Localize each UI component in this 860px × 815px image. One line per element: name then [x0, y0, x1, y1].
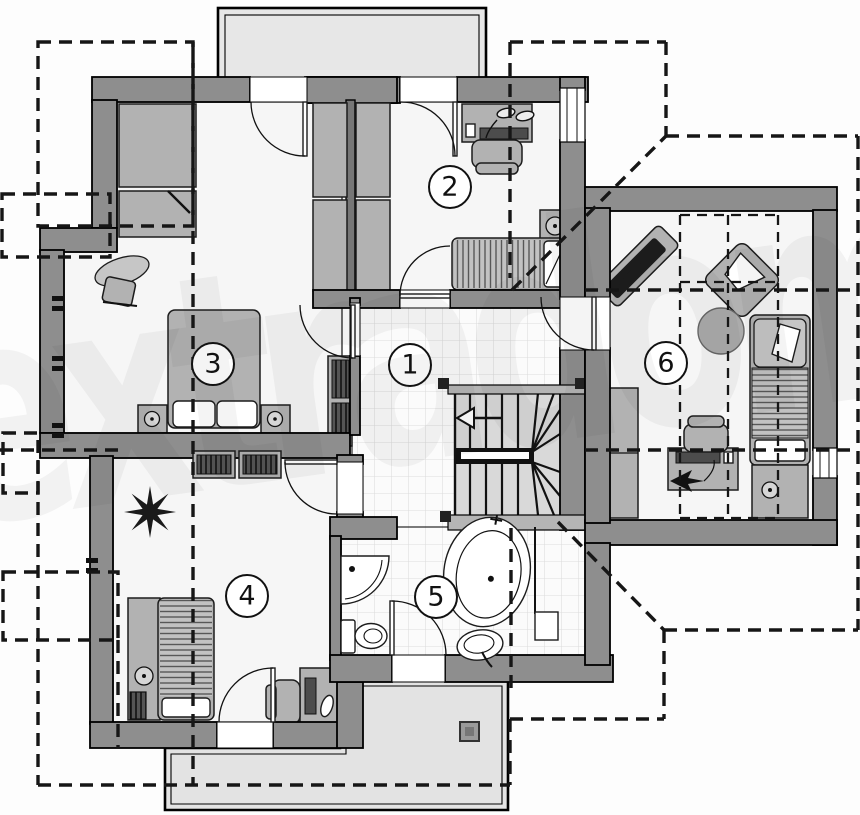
- room-number-4: 4: [238, 581, 255, 612]
- bedside-cabinet-room-6: [752, 465, 808, 518]
- window-room-2-east: [560, 88, 585, 142]
- room-label-2: 2: [429, 166, 471, 208]
- room-label-6: 6: [645, 342, 687, 384]
- round-rug-room-6: [698, 308, 744, 354]
- desk-chair-room-6: [684, 416, 728, 452]
- room-number-2: 2: [441, 172, 458, 203]
- room-number-5: 5: [427, 582, 444, 613]
- floor-plan-drawing: 1 2 3 4 5 6: [0, 0, 860, 815]
- bedside-platform-room-4: [128, 598, 160, 720]
- window-room-6-east: [813, 448, 837, 478]
- radiator-room-4: [130, 692, 146, 719]
- room-label-3: 3: [192, 343, 234, 385]
- single-bed-room-6: [750, 315, 810, 465]
- room-label-4: 4: [226, 575, 268, 617]
- room-number-3: 3: [204, 349, 221, 380]
- room-number-1: 1: [401, 350, 418, 381]
- room-label-1: 1: [389, 344, 431, 386]
- room-label-5: 5: [415, 576, 457, 618]
- plant-icon: [124, 486, 176, 538]
- desk-chair-room-2: [472, 140, 522, 174]
- terrace-flue-icon: [460, 722, 479, 741]
- floor-plan-canvas: 1 2 3 4 5 6 extradom: [0, 0, 860, 815]
- room-number-6: 6: [657, 348, 674, 379]
- alcove-wardrobes-room-3: [119, 104, 196, 237]
- single-bed-room-4: [158, 598, 214, 720]
